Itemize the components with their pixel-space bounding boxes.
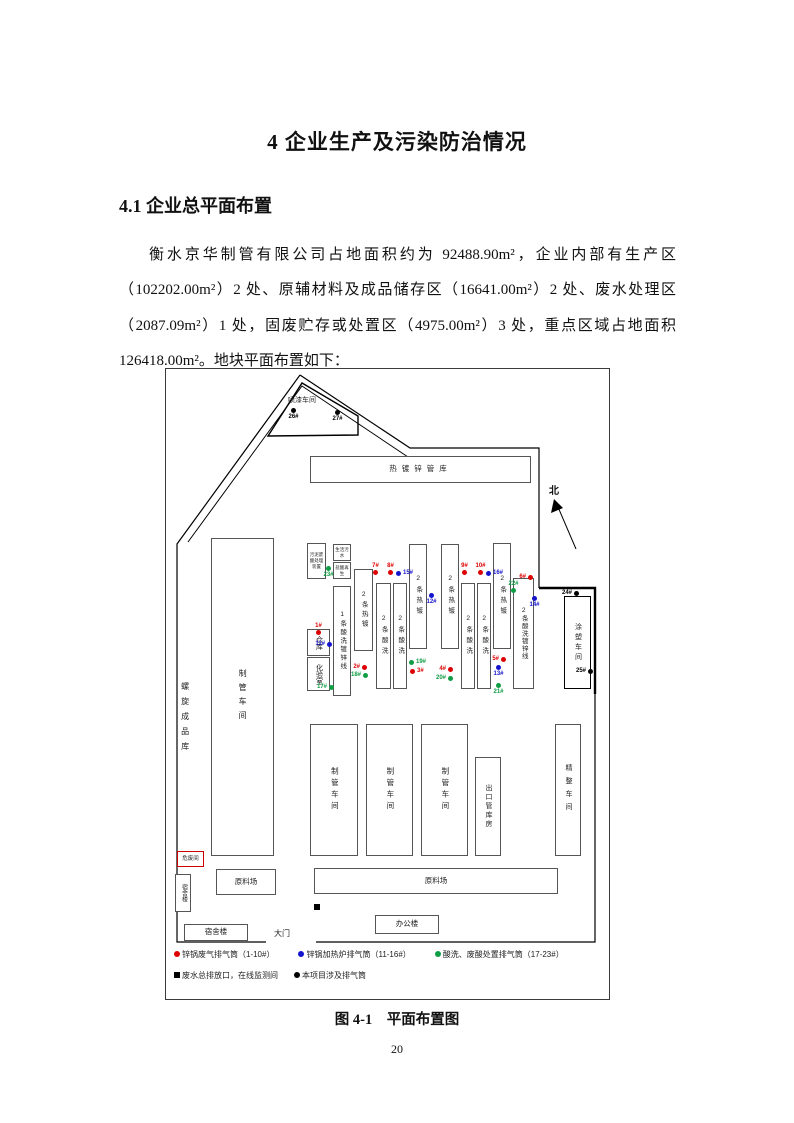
stack-8: 8# bbox=[388, 570, 393, 575]
document-page: 4 企业生产及污染防治情况 4.1 企业总平面布置 衡水京华制管有限公司占地面积… bbox=[0, 0, 794, 1123]
stack-19: 19# bbox=[409, 660, 414, 665]
figure-caption: 图 4-1 平面布置图 bbox=[0, 1008, 794, 1029]
stack-11: 11# bbox=[327, 642, 332, 647]
body-paragraph: 衡水京华制管有限公司占地面积约为 92488.90m²，企业内部有生产区（102… bbox=[119, 238, 676, 379]
stack-18: 18# bbox=[363, 673, 368, 678]
stack-13: 13# bbox=[496, 665, 501, 670]
stack-14: 14# bbox=[532, 596, 537, 601]
stack-10: 10# bbox=[478, 570, 483, 575]
stack-16: 16# bbox=[486, 571, 491, 576]
legend-item: 酸洗、废酸处置排气筒（17-23#） bbox=[435, 949, 564, 960]
stack-4: 4# bbox=[448, 667, 453, 672]
stack-24: 24# bbox=[574, 591, 579, 596]
stack-15: 15# bbox=[396, 571, 401, 576]
section-heading: 4.1 企业总平面布置 bbox=[119, 192, 272, 218]
stack-22: 22# bbox=[511, 588, 516, 593]
stack-21: 21# bbox=[496, 683, 501, 688]
site-plan-figure: 喷漆车间 热镀锌管库 螺旋成品库 制管车间 污泥废酸处理装置 生活污水 盐酸再生… bbox=[165, 368, 610, 1000]
stack-23: 23# bbox=[326, 566, 331, 571]
stack-12: 12# bbox=[429, 593, 434, 598]
stack-5: 5# bbox=[501, 657, 506, 662]
legend-item: 锌锅加热炉排气筒（11-16#） bbox=[298, 949, 410, 960]
legend-row-1: 锌锅废气排气筒（1-10#）锌锅加热炉排气筒（11-16#）酸洗、废酸处置排气筒… bbox=[174, 949, 564, 960]
legend-row-2: 废水总排放口，在线监测间本项目涉及排气筒 bbox=[174, 970, 366, 981]
legend-item: 锌锅废气排气筒（1-10#） bbox=[174, 949, 274, 960]
stack-3: 3# bbox=[410, 669, 415, 674]
stack-20: 20# bbox=[448, 676, 453, 681]
stack-6: 6# bbox=[528, 575, 533, 580]
stack-1: 1# bbox=[316, 630, 321, 635]
stack-25: 25# bbox=[588, 669, 593, 674]
stack-layer: 26#27#23#1#11#17#7#8#15#2#18#19#3#12#9#1… bbox=[166, 369, 611, 1001]
legend-item: 废水总排放口，在线监测间 bbox=[174, 970, 278, 981]
stack-17: 17# bbox=[329, 685, 334, 690]
page-number: 20 bbox=[0, 1042, 794, 1057]
stack-27: 27# bbox=[335, 410, 340, 415]
stack-2: 2# bbox=[362, 665, 367, 670]
stack-9: 9# bbox=[462, 570, 467, 575]
stack-7: 7# bbox=[373, 570, 378, 575]
stack-26: 26# bbox=[291, 408, 296, 413]
legend-item: 本项目涉及排气筒 bbox=[294, 970, 366, 981]
chapter-heading: 4 企业生产及污染防治情况 bbox=[0, 126, 794, 156]
